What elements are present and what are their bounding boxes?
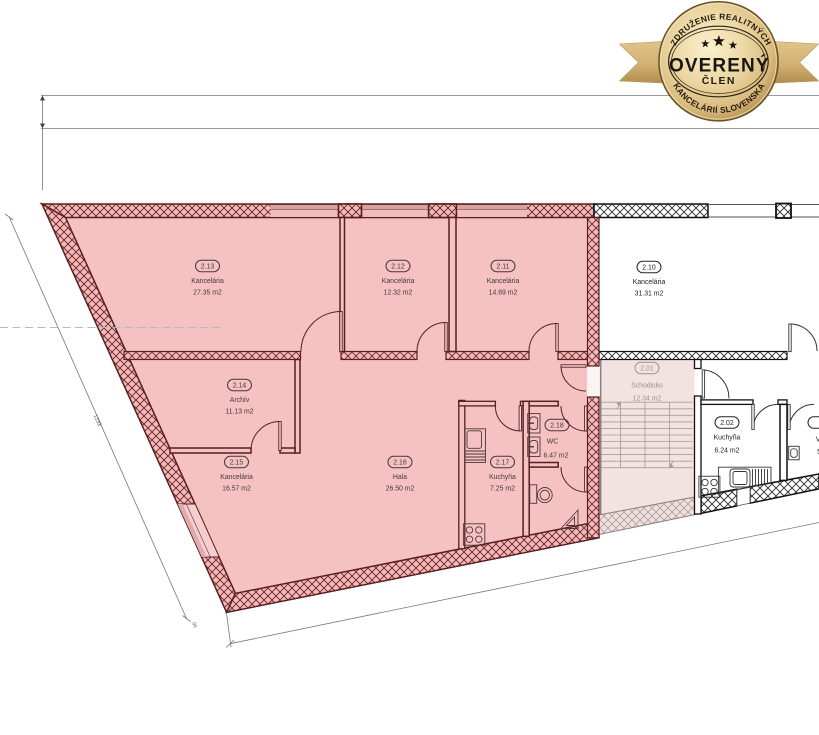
svg-text:1233: 1233 <box>92 414 102 428</box>
svg-text:Kuchyňa: Kuchyňa <box>714 435 741 442</box>
svg-text:Kuchyňa: Kuchyňa <box>489 474 516 481</box>
svg-text:27.35 m2: 27.35 m2 <box>193 290 222 297</box>
svg-text:12.34 m2: 12.34 m2 <box>633 396 662 403</box>
svg-text:Kancelária: Kancelária <box>382 278 415 285</box>
svg-text:31.31 m2: 31.31 m2 <box>635 291 664 298</box>
svg-text:14.69 m2: 14.69 m2 <box>489 290 518 297</box>
svg-text:12.32 m2: 12.32 m2 <box>384 290 413 297</box>
svg-text:2.15: 2.15 <box>230 459 244 466</box>
svg-text:WC: WC <box>547 439 559 446</box>
svg-text:2.02: 2.02 <box>720 420 734 427</box>
svg-text:11.13 m2: 11.13 m2 <box>225 409 253 416</box>
svg-text:Kancelária: Kancelária <box>633 279 666 286</box>
svg-text:2.01: 2.01 <box>640 365 654 372</box>
svg-text:7.25 m2: 7.25 m2 <box>490 486 515 493</box>
svg-text:2.16: 2.16 <box>393 459 407 466</box>
svg-text:16.57 m2: 16.57 m2 <box>222 486 251 493</box>
svg-text:Archív: Archív <box>230 397 250 404</box>
svg-text:Schodisko: Schodisko <box>631 383 663 390</box>
svg-text:Hala: Hala <box>393 474 407 481</box>
svg-text:2.10: 2.10 <box>642 264 656 271</box>
svg-text:Kancelária: Kancelária <box>220 474 253 481</box>
svg-text:2.17: 2.17 <box>496 459 510 466</box>
svg-text:Kancelária: Kancelária <box>191 278 224 285</box>
svg-text:2.13: 2.13 <box>201 263 215 270</box>
svg-text:6.24 m2: 6.24 m2 <box>715 448 740 455</box>
svg-text:OVERENÝ: OVERENÝ <box>669 54 770 76</box>
svg-text:Kancelária: Kancelária <box>487 278 520 285</box>
svg-text:06: 06 <box>190 621 198 629</box>
svg-text:ČLEN: ČLEN <box>702 74 736 87</box>
svg-text:2.11: 2.11 <box>497 263 510 270</box>
svg-text:2.18: 2.18 <box>550 422 564 429</box>
svg-text:26.50 m2: 26.50 m2 <box>386 486 415 493</box>
svg-text:2.14: 2.14 <box>233 382 247 389</box>
svg-text:6.47 m2: 6.47 m2 <box>544 453 569 460</box>
svg-text:2.12: 2.12 <box>391 263 405 270</box>
